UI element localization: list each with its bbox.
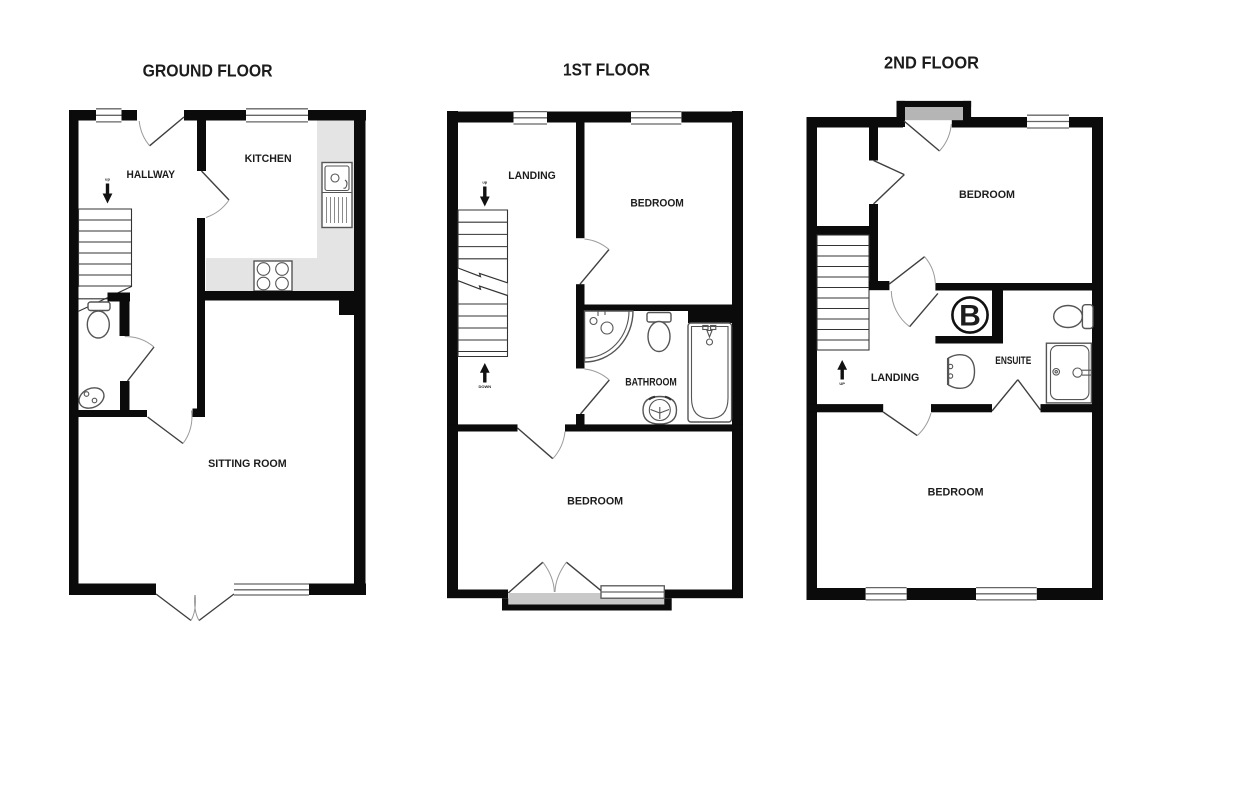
svg-text:KITCHEN: KITCHEN bbox=[245, 153, 292, 165]
svg-text:ENSUITE: ENSUITE bbox=[995, 355, 1031, 367]
svg-text:GROUND FLOOR: GROUND FLOOR bbox=[143, 60, 273, 80]
svg-text:up: up bbox=[105, 177, 110, 182]
svg-text:LANDING: LANDING bbox=[871, 372, 920, 384]
svg-text:BEDROOM: BEDROOM bbox=[928, 487, 984, 499]
svg-text:2ND FLOOR: 2ND FLOOR bbox=[884, 53, 979, 73]
svg-text:up: up bbox=[482, 180, 487, 185]
svg-text:HALLWAY: HALLWAY bbox=[127, 169, 176, 181]
svg-text:BEDROOM: BEDROOM bbox=[630, 198, 684, 210]
svg-text:BEDROOM: BEDROOM bbox=[959, 189, 1015, 201]
svg-text:UP: UP bbox=[839, 381, 845, 386]
svg-text:B: B bbox=[959, 300, 981, 333]
svg-text:SITTING ROOM: SITTING ROOM bbox=[208, 458, 287, 470]
svg-text:1ST FLOOR: 1ST FLOOR bbox=[563, 60, 650, 80]
svg-text:DOWN: DOWN bbox=[478, 384, 491, 389]
svg-text:BEDROOM: BEDROOM bbox=[567, 495, 623, 507]
svg-text:LANDING: LANDING bbox=[508, 170, 556, 182]
svg-text:BATHROOM: BATHROOM bbox=[625, 376, 677, 388]
